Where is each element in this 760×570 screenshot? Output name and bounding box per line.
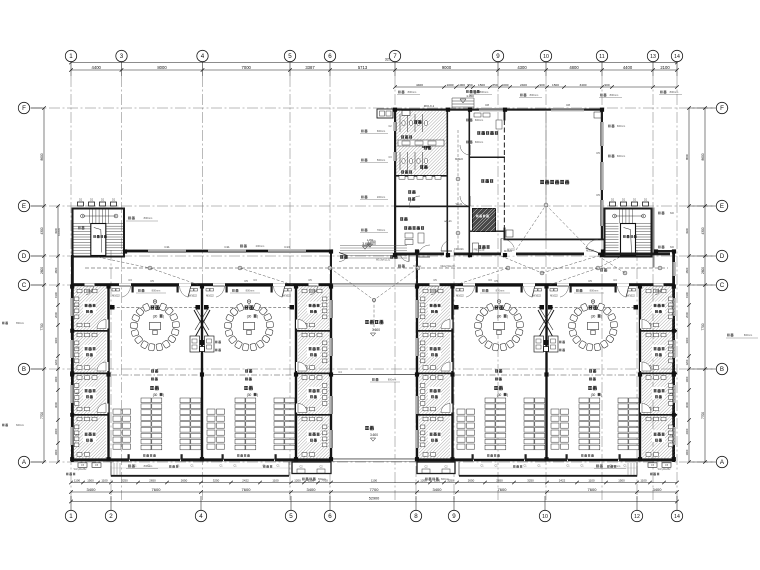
svg-text:M1022: M1022	[507, 249, 515, 252]
svg-text:9000: 9000	[442, 65, 452, 70]
svg-text:2400: 2400	[520, 83, 527, 87]
svg-text:8000: 8000	[157, 65, 167, 70]
svg-text:8600: 8600	[701, 153, 705, 160]
svg-text:4800: 4800	[569, 65, 579, 70]
svg-text:C8: C8	[566, 103, 570, 107]
svg-text:7600: 7600	[498, 487, 508, 492]
svg-text:C5: C5	[596, 193, 600, 197]
svg-text:C3: C3	[488, 278, 492, 282]
svg-text:1100: 1100	[588, 478, 595, 482]
svg-text:200mm: 200mm	[377, 196, 385, 199]
svg-text:1200: 1200	[54, 359, 58, 365]
svg-text:C13: C13	[284, 245, 290, 249]
svg-text:4300: 4300	[517, 65, 527, 70]
svg-text:2650: 2650	[468, 478, 475, 482]
svg-text:600mm: 600mm	[475, 141, 483, 144]
svg-text:2650: 2650	[181, 478, 188, 482]
svg-text:(30: (30	[591, 393, 596, 397]
svg-text:M1022: M1022	[456, 295, 464, 298]
svg-text:200mm: 200mm	[256, 244, 265, 248]
svg-text:2600: 2600	[685, 267, 689, 273]
svg-text:C3: C3	[128, 278, 132, 282]
svg-text:2650: 2650	[149, 478, 156, 482]
svg-text:2: 2	[109, 513, 113, 520]
svg-text:2600: 2600	[701, 267, 705, 274]
svg-text:3250: 3250	[213, 478, 220, 482]
svg-text:3.600: 3.600	[370, 433, 378, 437]
svg-text:800mm: 800mm	[670, 90, 679, 94]
svg-text:W1/yWL2B2: W1/yWL2B2	[74, 469, 87, 471]
svg-text:F: F	[720, 105, 724, 112]
svg-text:FM1021B: FM1021B	[474, 249, 485, 252]
svg-text:8600: 8600	[40, 153, 44, 160]
svg-text:14: 14	[674, 54, 680, 60]
svg-text:C5: C5	[588, 279, 592, 283]
svg-text:1000: 1000	[502, 83, 509, 87]
svg-text:7700: 7700	[370, 487, 380, 492]
svg-text:(30: (30	[497, 315, 502, 319]
svg-text:10: 10	[543, 54, 549, 60]
svg-text:1900: 1900	[685, 449, 689, 455]
svg-text:1100: 1100	[272, 478, 279, 482]
svg-text:900: 900	[539, 83, 544, 87]
svg-text:4400: 4400	[623, 65, 633, 70]
svg-text:C: C	[22, 282, 27, 289]
svg-text:M1022: M1022	[550, 295, 558, 298]
svg-text:14: 14	[674, 514, 680, 520]
svg-text:10: 10	[542, 514, 548, 520]
svg-text:3: 3	[120, 53, 124, 60]
svg-text:7600: 7600	[152, 487, 162, 492]
svg-text:7700: 7700	[40, 412, 44, 419]
svg-text:1200: 1200	[294, 478, 301, 482]
svg-text:WL21: WL21	[456, 202, 463, 206]
svg-text:B: B	[720, 366, 724, 373]
svg-text:3000: 3000	[54, 337, 58, 343]
svg-text:4400: 4400	[92, 65, 102, 70]
svg-text:1900: 1900	[54, 376, 58, 382]
svg-text:B: B	[22, 366, 26, 373]
svg-text:1.050: 1.050	[367, 238, 374, 242]
svg-text:800mm: 800mm	[144, 216, 153, 220]
svg-text:W1022: W1022	[189, 295, 198, 298]
svg-text:4400: 4400	[416, 83, 423, 87]
svg-text:800mm: 800mm	[530, 93, 539, 97]
svg-text:W5.3/yKL131: W5.3/yKL131	[376, 259, 391, 262]
svg-text:600mm: 600mm	[377, 130, 385, 133]
svg-text:800mm: 800mm	[246, 289, 255, 293]
svg-text:1500: 1500	[478, 83, 485, 87]
svg-text:C5: C5	[433, 278, 437, 282]
svg-text:ZK6-X-1: ZK6-X-1	[424, 104, 435, 108]
svg-text:(30: (30	[497, 393, 502, 397]
svg-text:F: F	[22, 105, 26, 112]
svg-text:2000: 2000	[685, 312, 689, 318]
svg-text:C3: C3	[613, 278, 617, 282]
svg-text:E: E	[22, 203, 26, 210]
svg-text:1100: 1100	[101, 478, 108, 482]
svg-text:7700: 7700	[701, 412, 705, 419]
svg-text:7700: 7700	[701, 323, 705, 330]
svg-text:4300: 4300	[40, 227, 44, 234]
svg-text:7600: 7600	[588, 487, 598, 492]
svg-text:1900: 1900	[54, 449, 58, 455]
svg-text:3000: 3000	[685, 402, 689, 408]
svg-text:600: 600	[670, 246, 675, 249]
svg-text:C5: C5	[596, 151, 600, 155]
svg-text:800mm: 800mm	[388, 379, 396, 382]
svg-text:1: 1	[69, 53, 73, 60]
svg-text:4: 4	[199, 513, 203, 520]
svg-text:M0822: M0822	[655, 290, 663, 293]
svg-text:4300: 4300	[685, 228, 689, 234]
svg-text:2000: 2000	[685, 428, 689, 434]
svg-text:52900: 52900	[369, 497, 380, 501]
svg-text:800mm: 800mm	[441, 478, 449, 481]
svg-text:700mm: 700mm	[377, 229, 385, 232]
svg-text:7700: 7700	[40, 323, 44, 330]
svg-text:1200: 1200	[685, 359, 689, 365]
svg-text:600mm: 600mm	[617, 155, 625, 158]
svg-text:5: 5	[288, 53, 292, 60]
svg-text:D: D	[22, 253, 27, 260]
svg-text:(30: (30	[247, 393, 252, 397]
svg-text:C3: C3	[253, 278, 257, 282]
svg-text:3400: 3400	[307, 487, 317, 492]
svg-text:7600: 7600	[242, 487, 252, 492]
svg-text:800mm: 800mm	[496, 289, 505, 293]
svg-text:3.600: 3.600	[372, 328, 380, 332]
svg-text:7000: 7000	[242, 65, 252, 70]
svg-text:C5: C5	[308, 278, 312, 282]
svg-text:W1022: W1022	[533, 295, 542, 298]
svg-text:5: 5	[289, 513, 293, 520]
svg-text:1900: 1900	[685, 376, 689, 382]
svg-text:1000: 1000	[447, 83, 454, 87]
svg-text:M1022: M1022	[206, 295, 214, 298]
svg-text:D: D	[720, 253, 725, 260]
svg-text:2650: 2650	[496, 478, 503, 482]
svg-text:600: 600	[670, 212, 675, 215]
svg-text:800mm: 800mm	[144, 464, 153, 468]
svg-text:C4: C4	[338, 370, 342, 374]
svg-text:(30: (30	[153, 393, 158, 397]
svg-text:800mm: 800mm	[318, 478, 326, 481]
svg-text:600mm: 600mm	[16, 424, 24, 427]
svg-text:7: 7	[393, 53, 397, 60]
svg-text:C8: C8	[485, 103, 489, 107]
svg-text:M1022: M1022	[586, 250, 594, 253]
svg-text:6: 6	[328, 513, 332, 520]
svg-text:C5: C5	[494, 279, 498, 283]
svg-text:5713: 5713	[358, 65, 368, 70]
svg-text:): )	[601, 393, 602, 397]
svg-text:C11: C11	[164, 245, 170, 249]
svg-text:12: 12	[634, 514, 640, 520]
svg-text:): )	[163, 393, 164, 397]
svg-text:3400: 3400	[433, 487, 443, 492]
svg-text:9: 9	[496, 53, 500, 60]
svg-text:1500: 1500	[552, 83, 559, 87]
svg-text:4300: 4300	[701, 227, 705, 234]
svg-text:1: 1	[69, 513, 73, 520]
svg-text:13: 13	[650, 54, 656, 60]
svg-text:C11: C11	[224, 245, 230, 249]
svg-text:3387: 3387	[305, 65, 315, 70]
svg-text:2600: 2600	[54, 267, 58, 273]
svg-text:800mm: 800mm	[744, 334, 752, 337]
svg-text:M0922: M0922	[455, 157, 463, 161]
svg-text:800mm: 800mm	[612, 464, 621, 468]
svg-text:C5: C5	[150, 279, 154, 283]
svg-text:3400: 3400	[653, 487, 663, 492]
svg-text:4: 4	[201, 53, 205, 60]
svg-text:FM1021: FM1021	[454, 247, 464, 251]
svg-text:8600: 8600	[685, 154, 689, 160]
svg-text:3000: 3000	[54, 402, 58, 408]
svg-text:W1022: W1022	[283, 295, 292, 298]
svg-text:2600: 2600	[40, 267, 44, 274]
svg-text:3400: 3400	[87, 487, 97, 492]
svg-text:800mm: 800mm	[408, 90, 417, 94]
svg-text:aAL21: aAL21	[444, 219, 452, 223]
svg-text:1500: 1500	[618, 478, 625, 482]
svg-text:C5: C5	[244, 279, 248, 283]
svg-text:3.600: 3.600	[362, 242, 371, 246]
svg-text:E: E	[720, 203, 724, 210]
svg-text:(30: (30	[247, 315, 252, 319]
svg-text:1100: 1100	[371, 478, 378, 482]
svg-text:): )	[507, 315, 508, 319]
svg-text:(30: (30	[153, 315, 158, 319]
svg-text:3400: 3400	[580, 83, 587, 87]
svg-text:1100: 1100	[640, 478, 647, 482]
svg-text:900: 900	[604, 83, 609, 87]
svg-text:500mm: 500mm	[377, 159, 385, 162]
svg-text:2422: 2422	[242, 478, 249, 482]
svg-text:1500: 1500	[87, 478, 94, 482]
svg-text:800mm: 800mm	[58, 228, 61, 236]
svg-text:11: 11	[599, 54, 604, 60]
svg-text:650mm: 650mm	[16, 322, 24, 325]
svg-text:700mm: 700mm	[413, 265, 421, 268]
svg-text:C: C	[720, 282, 725, 289]
svg-text:M0822: M0822	[431, 290, 439, 293]
svg-text:W1/yWL2B2: W1/yWL2B2	[658, 469, 671, 471]
svg-text:): )	[507, 393, 508, 397]
svg-text:3250: 3250	[121, 478, 128, 482]
svg-text:800mm: 800mm	[590, 289, 599, 293]
svg-text:1900: 1900	[685, 292, 689, 298]
svg-text:800mm: 800mm	[610, 93, 619, 97]
svg-text:): )	[601, 315, 602, 319]
svg-text:1900: 1900	[54, 292, 58, 298]
svg-text:550: 550	[467, 83, 472, 87]
svg-text:2100: 2100	[660, 65, 670, 70]
svg-text:2000: 2000	[54, 428, 58, 434]
svg-text:3000: 3000	[685, 337, 689, 343]
svg-text:6: 6	[328, 53, 332, 60]
svg-text:600mm: 600mm	[617, 125, 625, 128]
svg-text:M0822: M0822	[310, 290, 318, 293]
svg-text:800mm: 800mm	[480, 90, 489, 94]
svg-text:3250: 3250	[527, 478, 534, 482]
svg-text:1100: 1100	[74, 478, 81, 482]
svg-text:800mm: 800mm	[152, 289, 161, 293]
svg-text:8: 8	[414, 513, 418, 520]
svg-text:1000: 1000	[458, 83, 465, 87]
svg-text:2000: 2000	[54, 312, 58, 318]
svg-text:): )	[257, 393, 258, 397]
svg-text:): )	[257, 315, 258, 319]
svg-text:M0822: M0822	[86, 290, 94, 293]
svg-text:M1022: M1022	[112, 295, 120, 298]
svg-text:2422: 2422	[559, 478, 566, 482]
svg-text:850: 850	[492, 83, 497, 87]
svg-text:600mm: 600mm	[475, 119, 483, 122]
svg-text:NEA/yWL231: NEA/yWL231	[440, 265, 456, 268]
svg-text:): )	[163, 315, 164, 319]
svg-text:W1022: W1022	[627, 295, 636, 298]
svg-text:(30: (30	[591, 315, 596, 319]
svg-text:9: 9	[452, 513, 456, 520]
